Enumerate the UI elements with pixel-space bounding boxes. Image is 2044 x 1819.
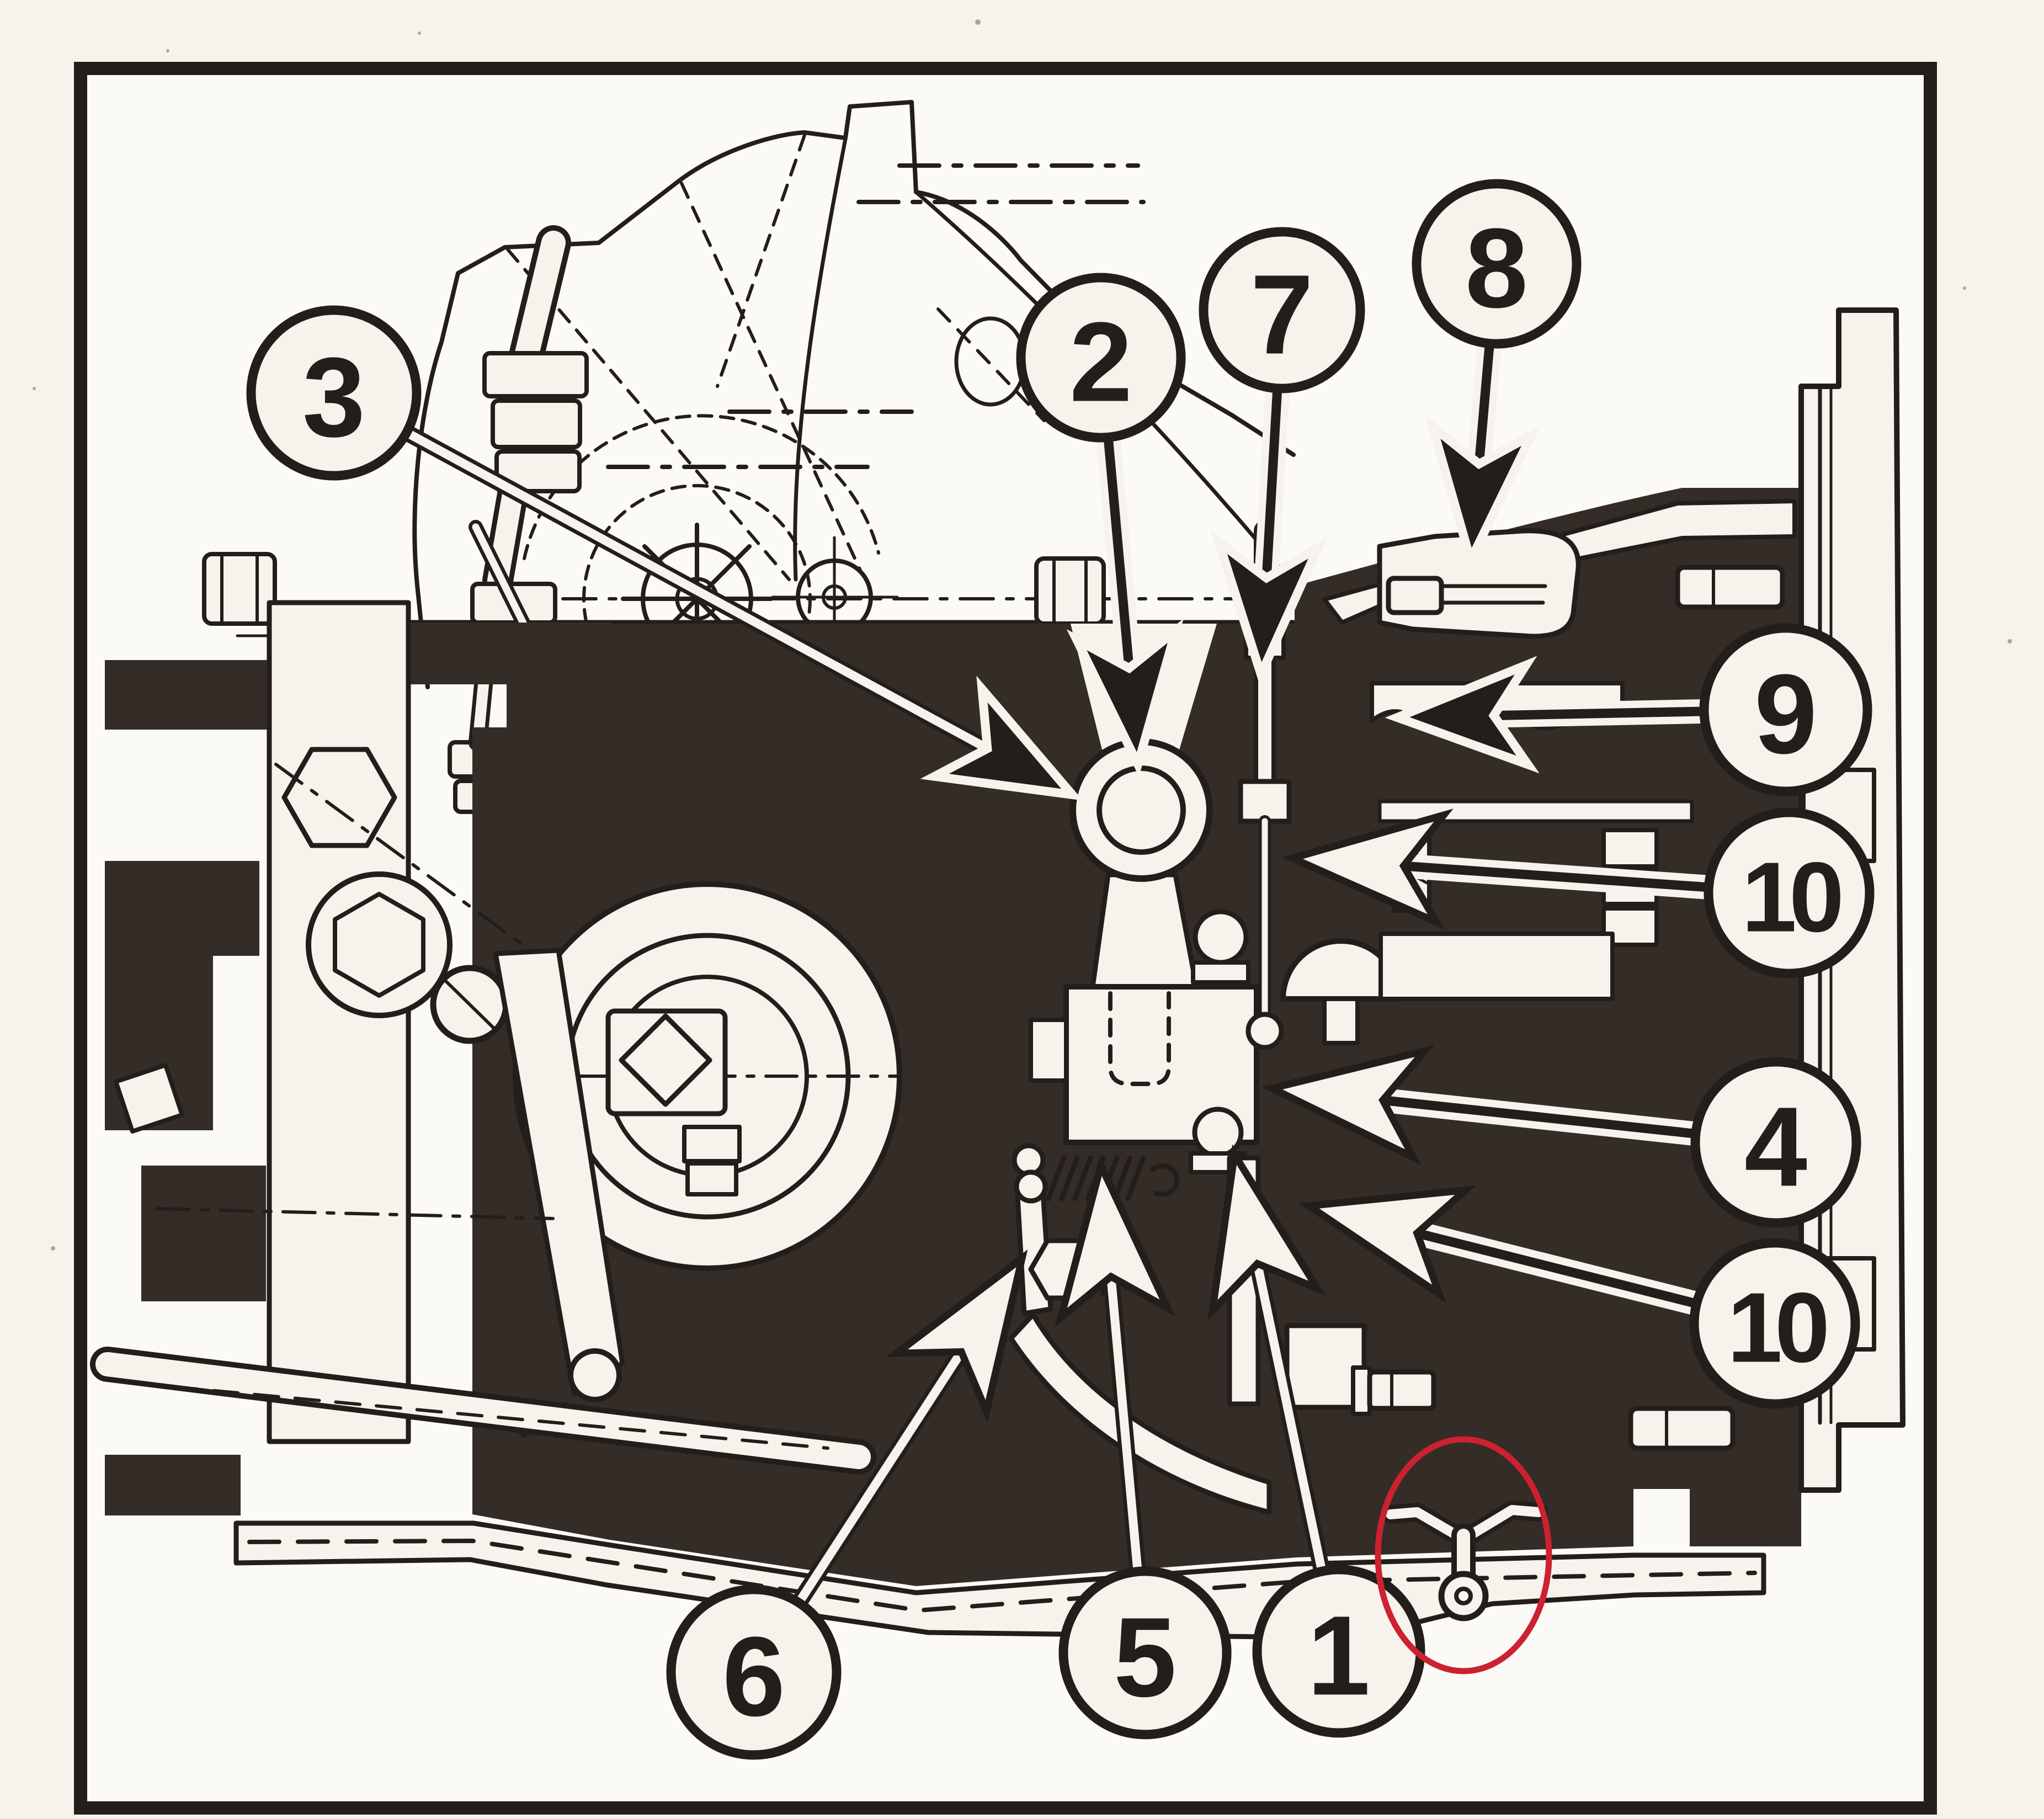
callout-number: 6 xyxy=(722,1614,785,1740)
callout-number: 10 xyxy=(1742,842,1840,953)
callout-number: 1 xyxy=(1307,1593,1370,1719)
callout-number: 5 xyxy=(1114,1594,1177,1721)
callout-number: 7 xyxy=(1250,252,1313,378)
callout-number: 4 xyxy=(1744,1084,1807,1210)
callout-number: 3 xyxy=(302,334,365,461)
callout-number: 8 xyxy=(1465,205,1528,332)
diagram-canvas: 3278910410651 xyxy=(0,0,2044,1819)
leader-line xyxy=(1492,711,1701,716)
callout-number: 10 xyxy=(1727,1273,1826,1384)
scanned-page: 3278910410651 xyxy=(0,0,2044,1819)
callout-number: 2 xyxy=(1069,299,1132,426)
callout-number: 9 xyxy=(1754,651,1817,778)
